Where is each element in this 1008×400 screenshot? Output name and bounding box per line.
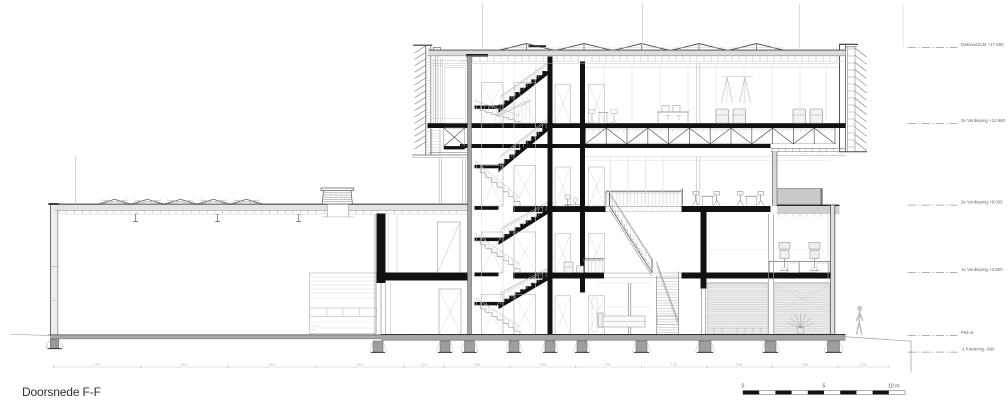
svg-text:5: 5 — [823, 384, 826, 390]
svg-text:Peil=0: Peil=0 — [961, 330, 974, 335]
svg-text:3.150: 3.150 — [860, 362, 867, 366]
svg-text:0: 0 — [742, 384, 745, 390]
svg-text:4.050: 4.050 — [605, 362, 612, 366]
svg-text:5.400: 5.400 — [94, 362, 101, 366]
svg-text:10 m: 10 m — [888, 384, 900, 390]
svg-text:Doorsnede F-F: Doorsnede F-F — [22, 385, 101, 399]
svg-text:4.050: 4.050 — [671, 362, 678, 366]
svg-text:3e Verdieping +12.950: 3e Verdieping +12.950 — [961, 118, 1006, 123]
svg-text:-1 fundering -990: -1 fundering -990 — [961, 346, 995, 351]
svg-text:Dakoverzicht +17.650: Dakoverzicht +17.650 — [961, 42, 1004, 47]
svg-text:5.400: 5.400 — [269, 362, 276, 366]
svg-text:2e Verdieping +8.000: 2e Verdieping +8.000 — [961, 199, 1003, 204]
svg-text:4.050: 4.050 — [736, 362, 743, 366]
svg-text:5.400: 5.400 — [357, 362, 364, 366]
svg-text:4.050: 4.050 — [802, 362, 809, 366]
svg-text:1e Verdieping +3.800: 1e Verdieping +3.800 — [961, 267, 1003, 272]
svg-text:2.500: 2.500 — [421, 362, 428, 366]
svg-text:4.050: 4.050 — [474, 362, 481, 366]
svg-text:5.400: 5.400 — [181, 362, 188, 366]
svg-text:4.050: 4.050 — [540, 362, 547, 366]
